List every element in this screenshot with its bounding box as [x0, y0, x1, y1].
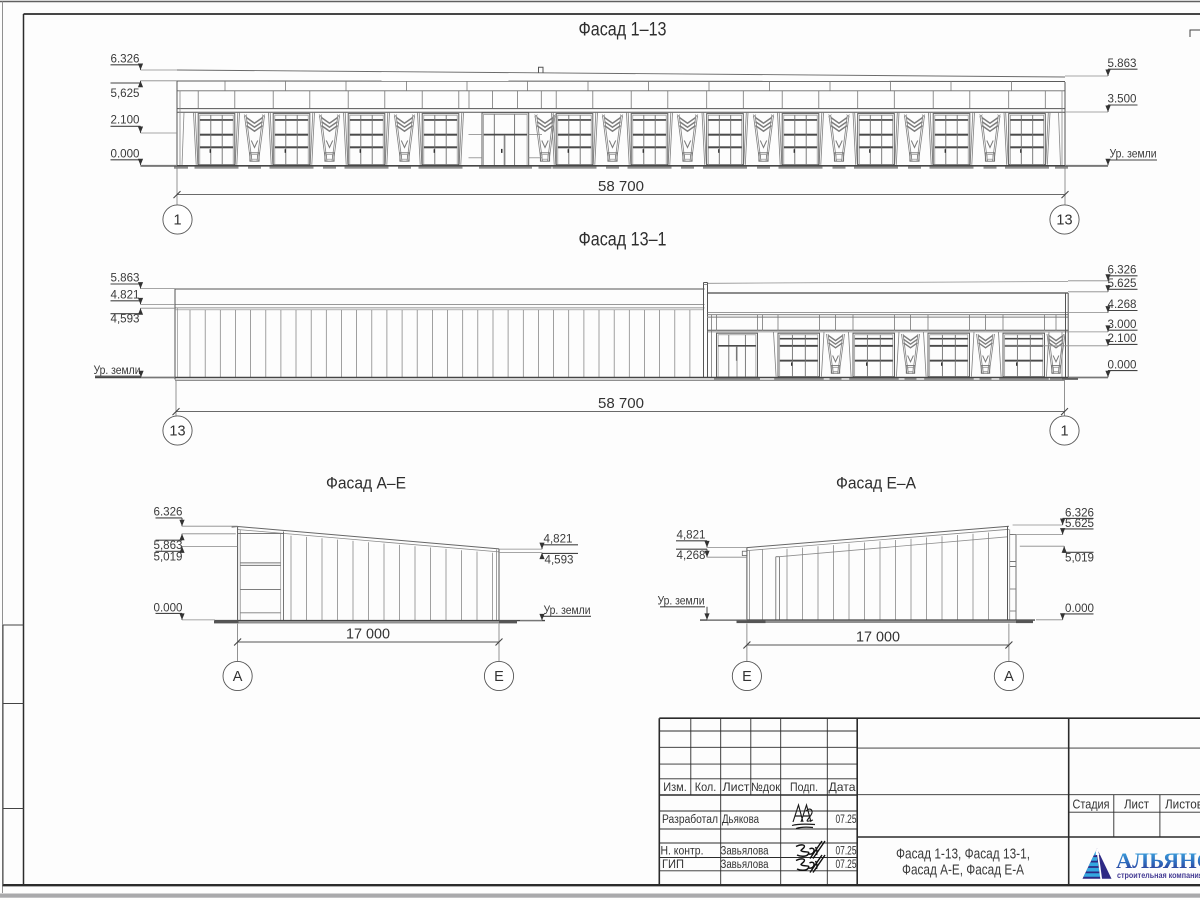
svg-text:Стадия: Стадия: [1073, 798, 1110, 812]
svg-text:Фасад 13–1: Фасад 13–1: [579, 230, 667, 251]
svg-text:4,593: 4,593: [545, 555, 574, 567]
svg-text:Изм.: Изм.: [663, 780, 687, 794]
svg-text:4,821: 4,821: [544, 534, 573, 546]
svg-text:0.000: 0.000: [1108, 359, 1137, 371]
svg-text:6.326: 6.326: [111, 54, 140, 66]
svg-text:4,593: 4,593: [111, 314, 140, 326]
svg-text:Ур. земли: Ур. земли: [94, 365, 141, 377]
svg-text:58 700: 58 700: [598, 396, 644, 412]
svg-text:0.000: 0.000: [1065, 603, 1094, 615]
svg-text:5,019: 5,019: [1065, 553, 1094, 565]
svg-text:Фасад 1-13, Фасад 13-1,: Фасад 1-13, Фасад 13-1,: [896, 847, 1030, 863]
svg-text:5,019: 5,019: [154, 552, 183, 564]
svg-text:07.25: 07.25: [836, 814, 857, 826]
svg-text:1: 1: [1060, 424, 1068, 440]
svg-text:Кол.: Кол.: [695, 780, 717, 794]
svg-text:58 700: 58 700: [598, 179, 644, 195]
svg-text:Н. контр.: Н. контр.: [661, 846, 704, 858]
svg-text:Листов: Листов: [1165, 798, 1200, 812]
svg-text:Ур. земли: Ур. земли: [658, 596, 705, 608]
svg-text:5.625: 5.625: [1065, 518, 1094, 530]
svg-text:Дата: Дата: [829, 780, 856, 794]
svg-text:Ур. земли: Ур. земли: [1110, 149, 1157, 161]
svg-text:А: А: [1004, 669, 1014, 685]
svg-text:13: 13: [1056, 213, 1072, 229]
svg-text:0.000: 0.000: [154, 603, 183, 615]
svg-text:5,625: 5,625: [111, 88, 140, 100]
svg-text:07.25: 07.25: [836, 846, 857, 858]
svg-text:Фасад 1–13: Фасад 1–13: [579, 20, 667, 41]
svg-text:3.500: 3.500: [1108, 94, 1137, 106]
svg-text:Завьялова: Завьялова: [721, 846, 770, 858]
svg-text:Завьялова: Завьялова: [721, 859, 770, 871]
svg-text:№док: №док: [751, 780, 781, 794]
svg-text:Разработал: Разработал: [662, 814, 718, 826]
svg-text:Фасад А-Е, Фасад Е-А: Фасад А-Е, Фасад Е-А: [902, 863, 1024, 879]
svg-text:2.100: 2.100: [1108, 333, 1137, 345]
svg-text:Е: Е: [742, 669, 752, 685]
svg-text:Ур. земли: Ур. земли: [544, 605, 591, 617]
svg-text:2.100: 2.100: [111, 115, 140, 127]
svg-text:5.625: 5.625: [1108, 278, 1137, 290]
svg-text:6.326: 6.326: [1108, 265, 1137, 277]
svg-text:Фасад Е–А: Фасад Е–А: [836, 474, 917, 493]
svg-text:3.000: 3.000: [1108, 319, 1137, 331]
svg-text:Е: Е: [494, 669, 504, 685]
svg-text:4.268: 4.268: [1108, 299, 1137, 311]
svg-text:Лист: Лист: [1124, 798, 1149, 812]
svg-text:Дьякова: Дьякова: [722, 814, 759, 826]
svg-text:5.863: 5.863: [111, 273, 140, 285]
svg-text:4,268: 4,268: [677, 550, 706, 562]
svg-text:Подп.: Подп.: [790, 780, 818, 794]
svg-text:А: А: [233, 669, 243, 685]
svg-text:5,863: 5,863: [154, 540, 183, 552]
svg-text:13: 13: [169, 424, 185, 440]
svg-text:строительная компания: строительная компания: [1117, 871, 1200, 880]
svg-text:07.25: 07.25: [836, 859, 857, 871]
svg-text:Лист: Лист: [723, 780, 751, 794]
svg-text:4,821: 4,821: [677, 530, 706, 542]
svg-text:5.863: 5.863: [1108, 58, 1137, 70]
svg-text:АЛЬЯНС: АЛЬЯНС: [1116, 848, 1200, 873]
svg-text:17 000: 17 000: [856, 630, 900, 646]
svg-text:17 000: 17 000: [346, 627, 390, 643]
svg-text:Фасад А–Е: Фасад А–Е: [326, 474, 406, 493]
svg-text:6.326: 6.326: [154, 507, 183, 519]
svg-text:1: 1: [173, 213, 181, 229]
svg-text:ГИП: ГИП: [662, 859, 684, 871]
svg-text:4.821: 4.821: [111, 290, 140, 302]
svg-text:0.000: 0.000: [111, 149, 140, 161]
